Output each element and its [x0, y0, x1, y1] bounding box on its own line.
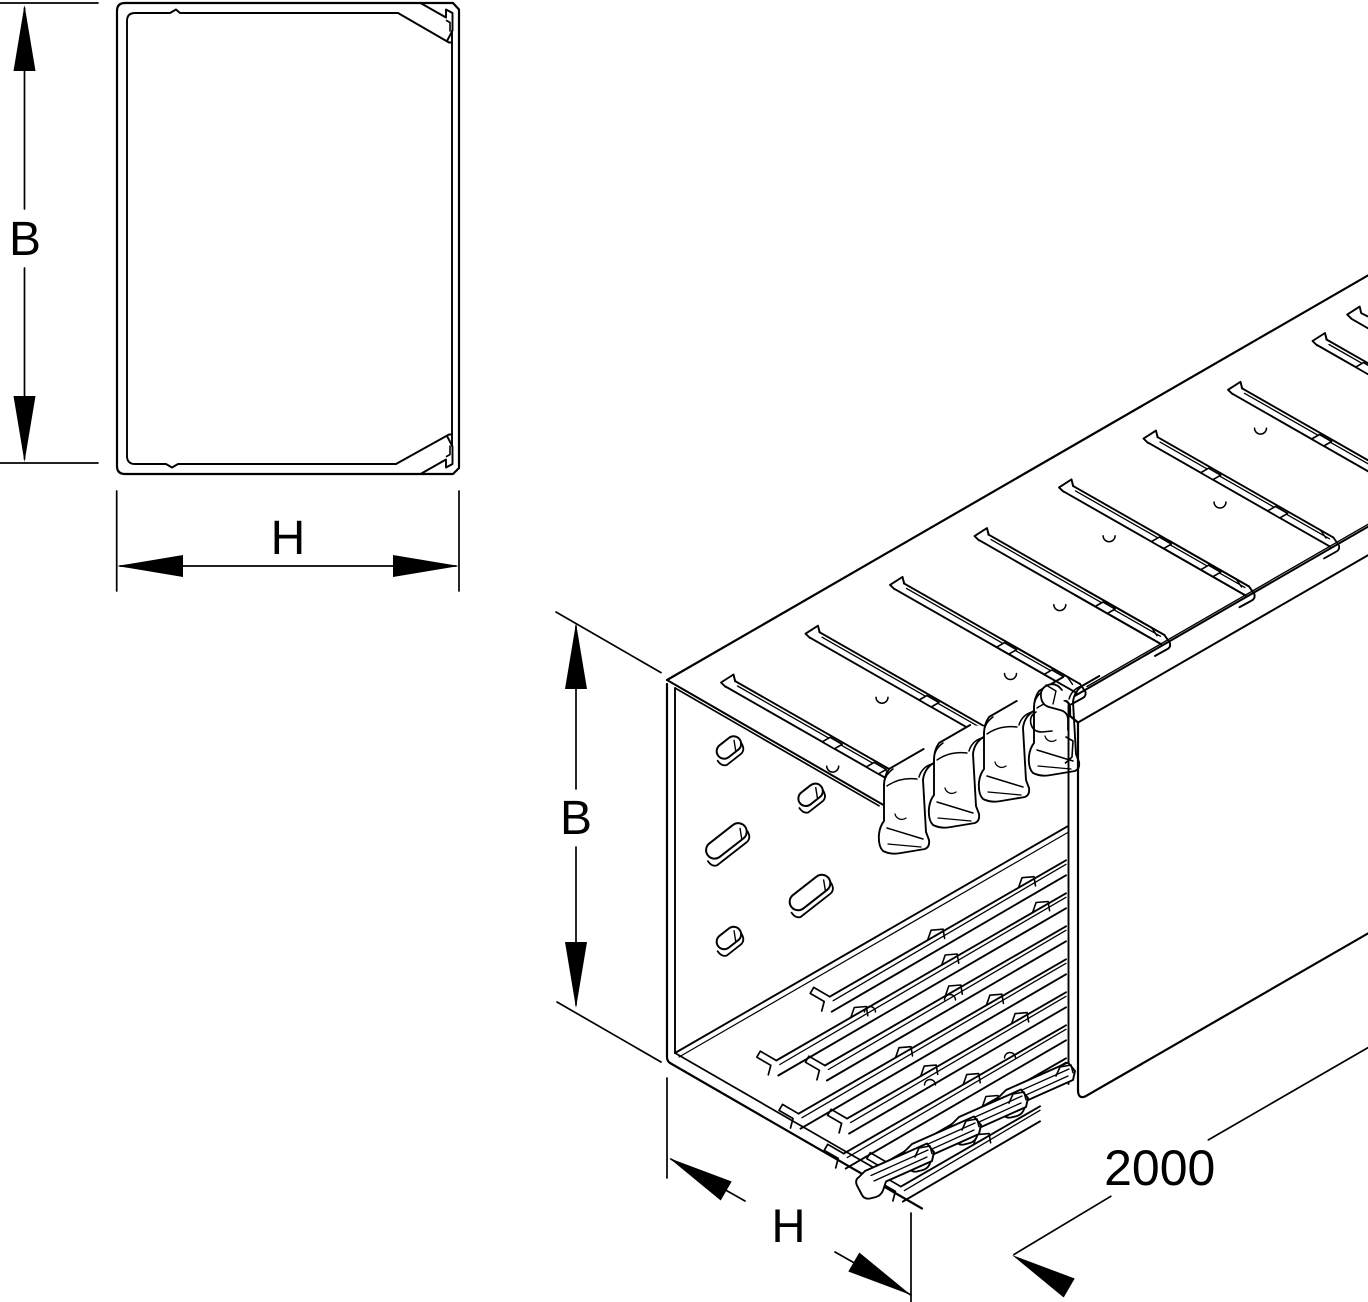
svg-text:H: H: [772, 1199, 806, 1252]
svg-text:B: B: [560, 792, 592, 845]
svg-text:B: B: [9, 213, 41, 266]
svg-text:H: H: [271, 512, 306, 565]
svg-text:2000: 2000: [1104, 1140, 1215, 1196]
